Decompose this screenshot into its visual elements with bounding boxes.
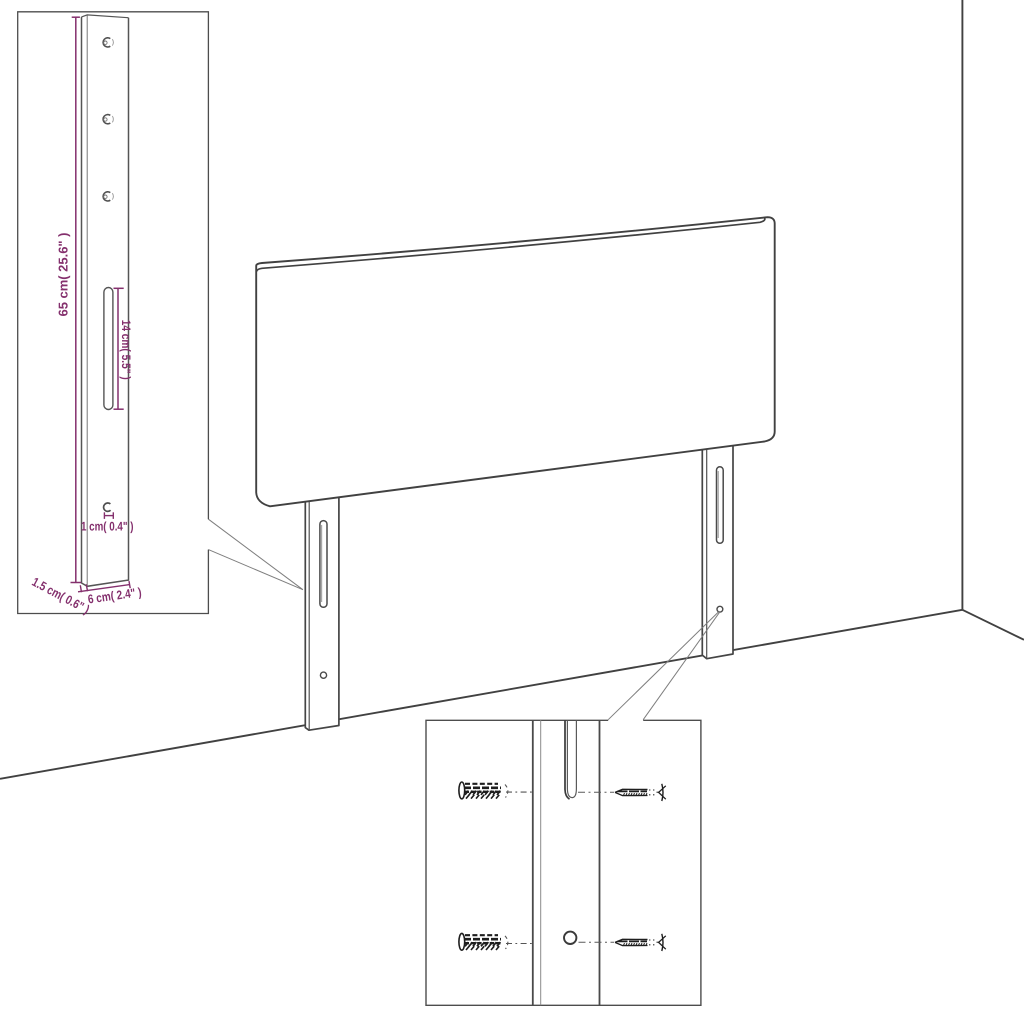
svg-text:65 cm( 25.6" ): 65 cm( 25.6" ) [55,233,70,317]
svg-text:14 cm( 5.5" ): 14 cm( 5.5" ) [119,320,133,380]
svg-text:1 cm( 0.4" ): 1 cm( 0.4" ) [81,520,134,534]
